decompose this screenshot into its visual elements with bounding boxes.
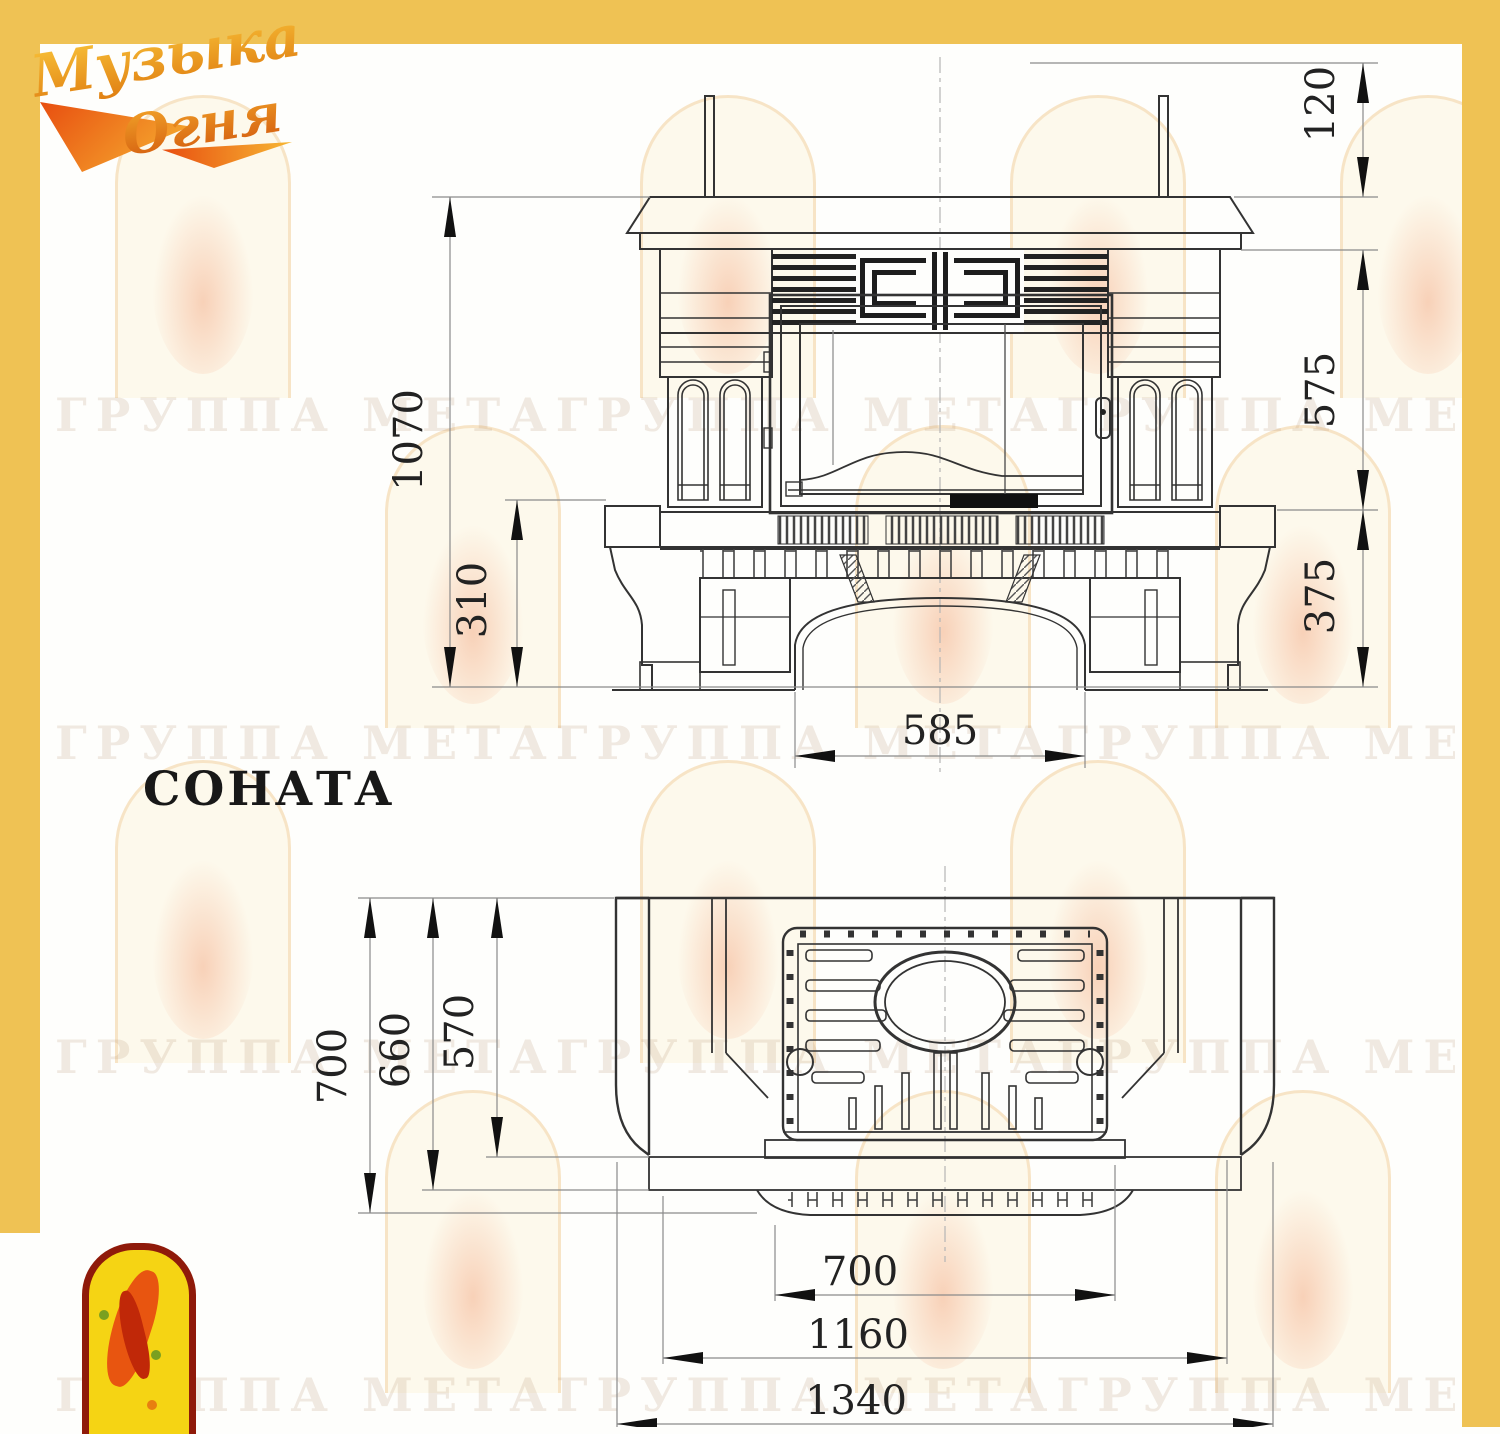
front-elevation-drawing: [605, 57, 1275, 775]
chimney-pipe-right: [1159, 96, 1168, 197]
glass-wave: [800, 452, 1083, 480]
ash-lip: [950, 494, 1038, 508]
frieze-meander-ornament: [856, 250, 1024, 332]
dim-width-total: 1340: [805, 1378, 907, 1424]
dim-depth-total: 700: [310, 1028, 356, 1104]
dim-width-opening: 700: [822, 1249, 898, 1295]
dim-depth-firebox: 570: [437, 994, 483, 1070]
dentil-row: [700, 549, 1180, 578]
dim-base-height: 375: [1298, 558, 1344, 634]
plan-apron-dentils: [788, 1192, 1104, 1207]
corbel-right: [1228, 547, 1270, 690]
dim-total-height: 1070: [386, 389, 432, 491]
vent-grilles: [778, 516, 1104, 544]
chimney-pipe-left: [705, 96, 714, 197]
fireplace-technical-drawing: 1070 310 120 575 375 585 700 660 570 700…: [0, 0, 1500, 1427]
hinge-knob-left: [787, 1049, 813, 1075]
dim-hearth-height: 310: [450, 562, 496, 638]
plan-wing-right: [1241, 898, 1274, 1155]
dim-portal-height: 575: [1298, 352, 1344, 428]
capital-right: [1108, 333, 1220, 377]
corbel-left: [610, 547, 652, 690]
hearth-block-left: [605, 506, 660, 547]
dim-depth-body: 660: [373, 1012, 419, 1088]
capital-left: [660, 333, 772, 377]
frieze-left-block: [660, 249, 772, 333]
plan-wing-left: [616, 898, 649, 1155]
frieze-right-block: [1108, 249, 1220, 333]
dim-width-body: 1160: [807, 1312, 909, 1358]
dim-arch-width: 585: [902, 708, 978, 754]
door-handle: [1096, 398, 1110, 438]
base-panel-left: [700, 578, 790, 672]
hearth-block-right: [1220, 506, 1275, 547]
base-panel-right: [1090, 578, 1180, 672]
plan-view-drawing: [616, 866, 1274, 1262]
dim-chimney-top: 120: [1298, 66, 1344, 142]
hinge-knob-right: [1077, 1049, 1103, 1075]
